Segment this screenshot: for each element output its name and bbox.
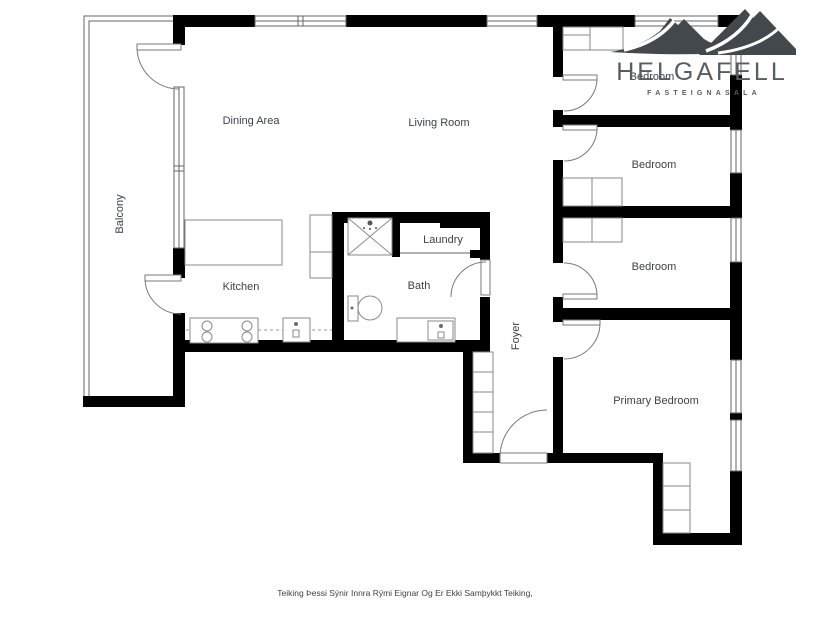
kitchen-cabinets [310,215,332,278]
room-label-laundry: Laundry [423,234,463,246]
bath-vanity-icon [397,318,455,342]
kitchen-island [185,220,282,265]
logo-tagline: FASTEIGNASALA [608,90,800,97]
shower-icon [348,218,392,255]
balcony-outline [84,16,173,396]
room-label-bath: Bath [408,280,431,292]
logo-name: HELGAFELL [606,58,798,87]
agency-logo: HELGAFELL FASTEIGNASALA [600,4,805,106]
wardrobe-bedroom-lower [563,218,622,242]
room-label-bedroom-middle: Bedroom [632,159,677,171]
toilet-icon [348,296,382,321]
room-label-living: Living Room [408,117,469,129]
wardrobe-bedroom-middle [563,178,622,206]
room-label-bedroom-lower: Bedroom [632,261,677,273]
disclaimer-text: Teiking Þessi Sýnir Innra Rými Eignar Og… [0,588,810,598]
room-label-balcony: Balcony [114,194,126,233]
floor-plan-page: Balcony Dining Area Living Room Kitchen … [0,0,827,620]
foyer-closet [473,352,493,453]
kitchen-sink-icon [283,318,310,342]
primary-closet [663,463,690,533]
room-label-primary-bedroom: Primary Bedroom [613,395,699,407]
room-label-kitchen: Kitchen [223,281,260,293]
room-label-foyer: Foyer [510,322,522,350]
stove-icon [190,318,258,343]
room-label-dining: Dining Area [223,115,280,127]
mountain-range-icon [606,6,798,60]
